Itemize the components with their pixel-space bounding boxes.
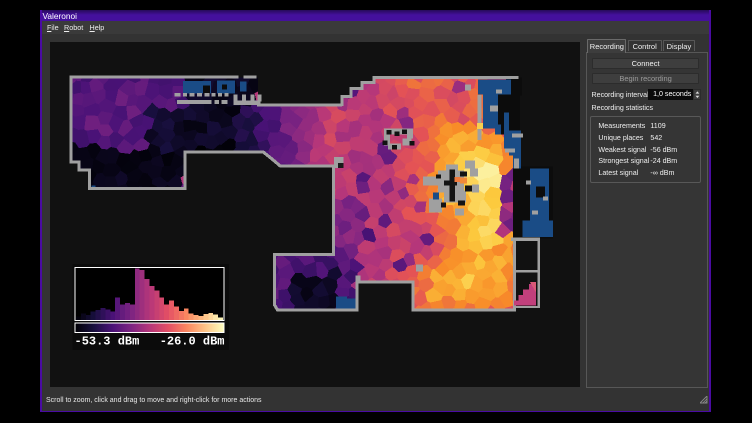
svg-text:-26.0 dBm: -26.0 dBm	[160, 334, 225, 348]
svg-text:-53.3 dBm: -53.3 dBm	[75, 334, 140, 348]
